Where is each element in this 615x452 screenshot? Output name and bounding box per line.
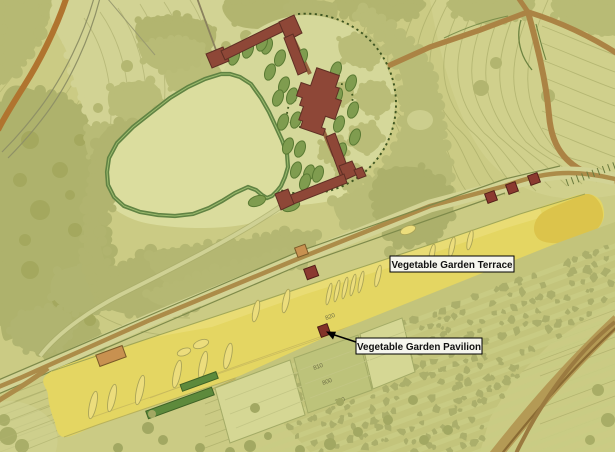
svg-text:Vegetable Garden Pavilion: Vegetable Garden Pavilion [357, 342, 481, 353]
svg-text:Vegetable Garden Terrace: Vegetable Garden Terrace [391, 260, 513, 271]
